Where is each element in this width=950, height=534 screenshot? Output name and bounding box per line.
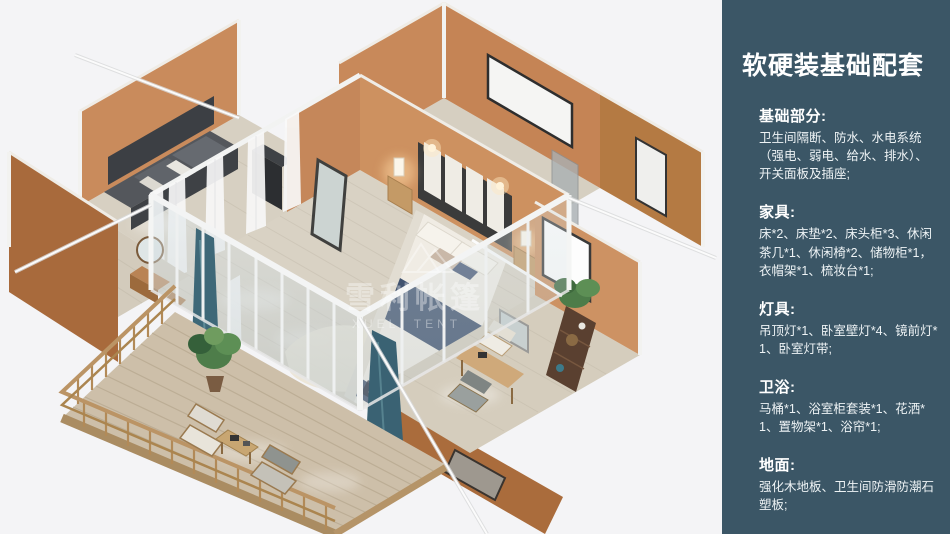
section-body: 马桶*1、浴室柜套装*1、花洒*1、置物架*1、浴帘*1; [759,400,938,436]
section-furniture: 家具: 床*2、床垫*2、床头柜*3、休闲茶几*1、休闲椅*2、储物柜*1，衣帽… [759,201,938,279]
section-body: 强化木地板、卫生间防滑防潮石塑板; [759,478,938,514]
leaning-mirror [312,160,346,250]
section-body: 吊顶灯*1、卧室壁灯*4、镜前灯*1、卧室灯带; [759,322,938,358]
section-basics: 基础部分: 卫生间隔断、防水、水电系统（强电、弱电、给水、排水）、开关面板及插座… [759,105,938,183]
section-flooring: 地面: 强化木地板、卫生间防滑防潮石塑板; [759,454,938,514]
info-panel: 软硬装基础配套 基础部分: 卫生间隔断、防水、水电系统（强电、弱电、给水、排水）… [722,0,950,534]
floorplan-stage: 雪利帐篷 XUELI TENT [0,0,722,534]
section-heading: 家具: [759,201,938,222]
section-bathroom: 卫浴: 马桶*1、浴室柜套装*1、花洒*1、置物架*1、浴帘*1; [759,376,938,436]
section-heading: 地面: [759,454,938,475]
section-body: 卫生间隔断、防水、水电系统（强电、弱电、给水、排水）、开关面板及插座; [759,129,938,183]
top-right-wall [600,93,703,247]
floorplan-illustration: 雪利帐篷 XUELI TENT [0,0,722,534]
section-lighting: 灯具: 吊顶灯*1、卧室壁灯*4、镜前灯*1、卧室灯带; [759,298,938,358]
section-body: 床*2、床垫*2、床头柜*3、休闲茶几*1、休闲椅*2、储物柜*1，衣帽架*1、… [759,225,938,279]
section-heading: 基础部分: [759,105,938,126]
watermark-en: XUELI TENT [352,317,461,331]
panel-title: 软硬装基础配套 [742,46,940,82]
section-heading: 卫浴: [759,376,938,397]
panel-sections: 基础部分: 卫生间隔断、防水、水电系统（强电、弱电、给水、排水）、开关面板及插座… [759,105,938,515]
section-heading: 灯具: [759,298,938,319]
watermark-cn: 雪利帐篷 [345,282,485,315]
